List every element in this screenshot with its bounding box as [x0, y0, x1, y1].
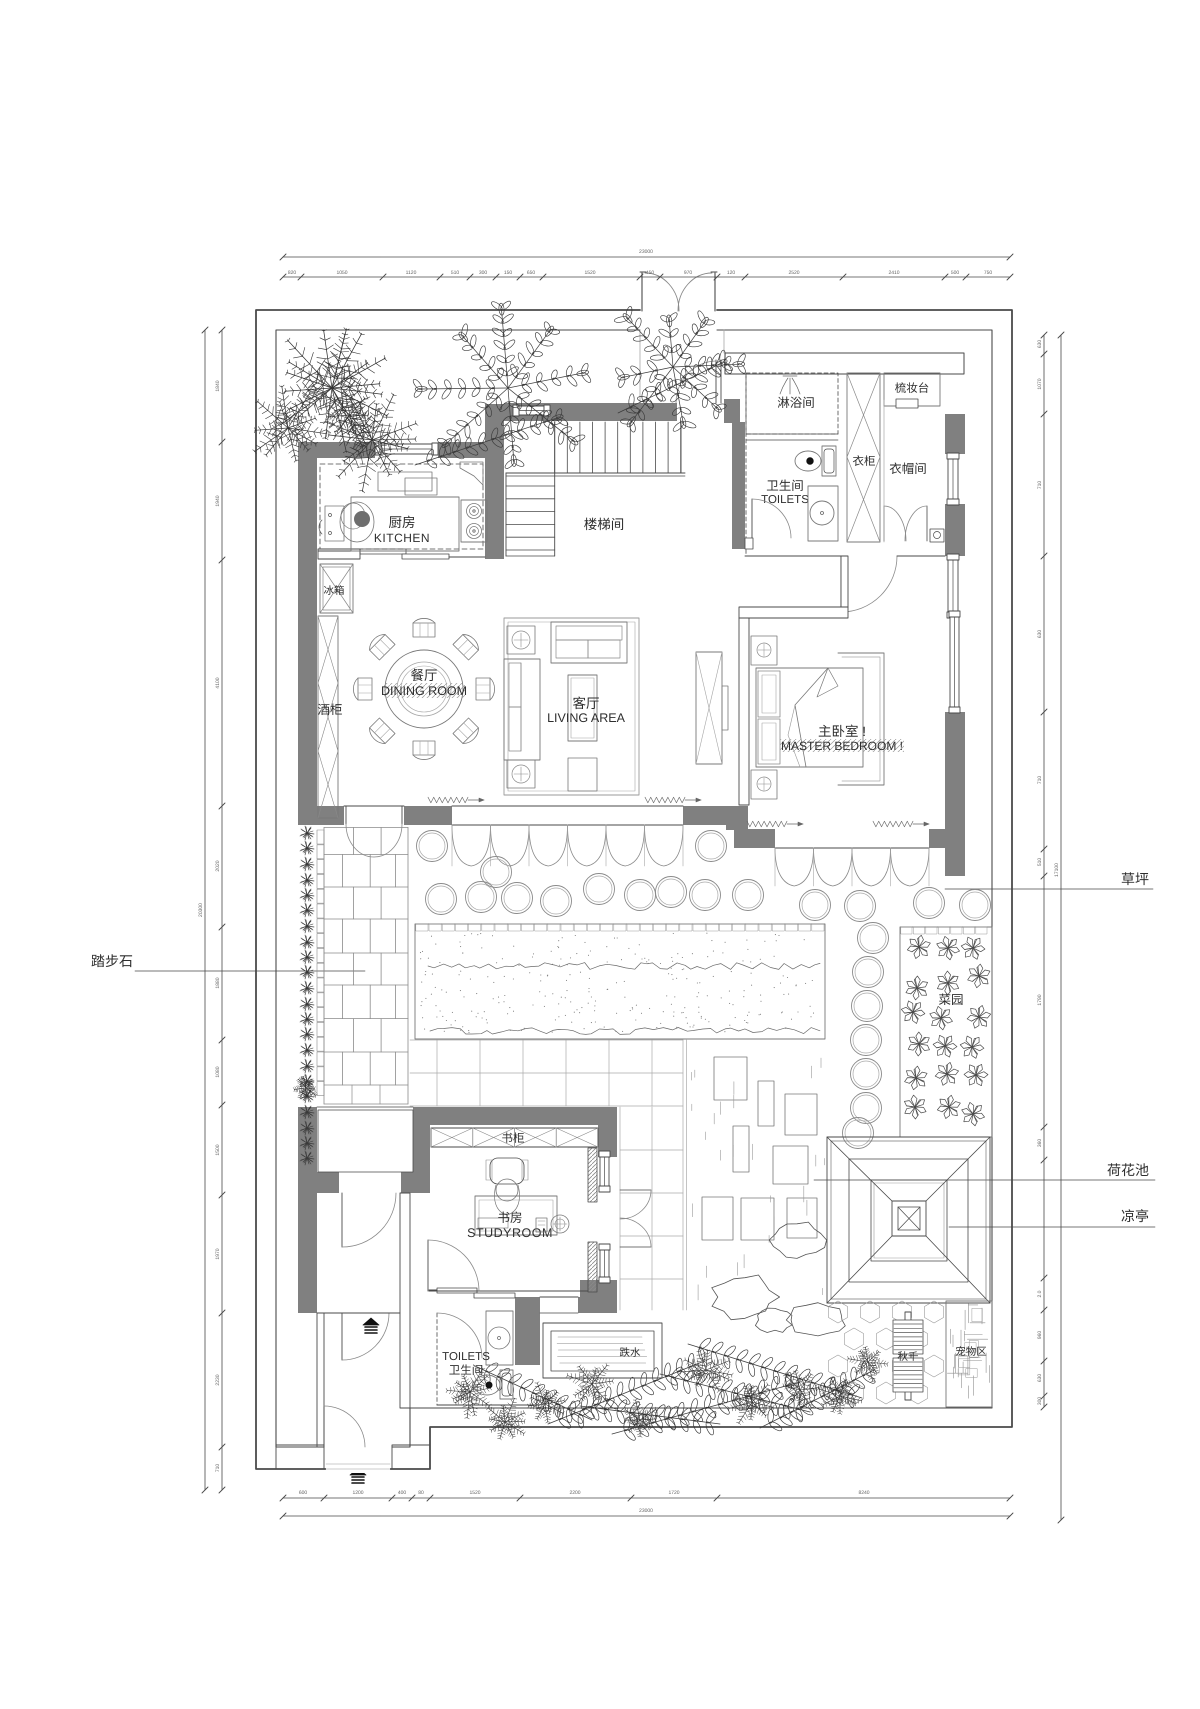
svg-text:1520: 1520 [469, 1490, 480, 1496]
svg-text:宠物区: 宠物区 [955, 1346, 987, 1358]
svg-text:卫生间: 卫生间 [766, 479, 804, 493]
svg-text:2230: 2230 [215, 1374, 221, 1385]
svg-text:23000: 23000 [639, 249, 653, 255]
svg-text:1050: 1050 [336, 270, 347, 276]
svg-text:楼梯间: 楼梯间 [584, 517, 625, 532]
svg-text:衣帽间: 衣帽间 [889, 462, 927, 476]
svg-text:荷花池: 荷花池 [1107, 1162, 1149, 1178]
svg-text:跌水: 跌水 [620, 1347, 641, 1359]
svg-text:710: 710 [1037, 481, 1043, 490]
svg-text:750: 750 [984, 270, 993, 276]
svg-text:17100: 17100 [1054, 863, 1060, 877]
svg-text:1500: 1500 [215, 1144, 221, 1155]
svg-text:2520: 2520 [788, 270, 799, 276]
svg-text:客厅: 客厅 [573, 696, 600, 711]
svg-text:23000: 23000 [639, 1508, 653, 1514]
svg-text:2020: 2020 [215, 860, 221, 871]
svg-text:2200: 2200 [569, 1490, 580, 1496]
svg-text:草坪: 草坪 [1121, 871, 1149, 887]
svg-text:1120: 1120 [406, 270, 417, 276]
svg-text:600: 600 [299, 1490, 308, 1496]
svg-text:8240: 8240 [858, 1490, 869, 1496]
svg-text:20300: 20300 [198, 903, 204, 917]
svg-text:书房: 书房 [497, 1211, 522, 1225]
svg-text:2410: 2410 [888, 270, 899, 276]
svg-text:MASTER BEDROOM !: MASTER BEDROOM ! [781, 739, 903, 753]
svg-text:餐厅: 餐厅 [411, 668, 438, 683]
svg-text:710: 710 [215, 1464, 221, 1473]
svg-text:1070: 1070 [1037, 378, 1043, 389]
svg-text:510: 510 [1037, 858, 1043, 867]
svg-text:710: 710 [1037, 776, 1043, 785]
svg-text:630: 630 [1037, 340, 1043, 349]
svg-text:510: 510 [451, 270, 460, 276]
svg-text:卫生间: 卫生间 [449, 1364, 484, 1377]
svg-text:KITCHEN: KITCHEN [374, 531, 430, 545]
svg-text:970: 970 [684, 270, 693, 276]
svg-text:450: 450 [646, 270, 655, 276]
svg-text:STUDYROOM: STUDYROOM [467, 1226, 553, 1240]
svg-text:400: 400 [398, 1490, 407, 1496]
svg-text:踏步石: 踏步石 [91, 953, 133, 969]
svg-text:LIVING AREA: LIVING AREA [547, 711, 625, 725]
svg-text:360: 360 [1037, 1139, 1043, 1148]
svg-text:4100: 4100 [215, 677, 221, 688]
svg-text:酒柜: 酒柜 [317, 703, 342, 717]
svg-text:630: 630 [1037, 1374, 1043, 1383]
svg-text:1520: 1520 [584, 270, 595, 276]
svg-text:150: 150 [504, 270, 513, 276]
svg-text:650: 650 [527, 270, 536, 276]
svg-text:1940: 1940 [215, 495, 221, 506]
svg-text:2.0: 2.0 [1037, 1290, 1043, 1297]
svg-text:衣柜: 衣柜 [853, 455, 876, 468]
svg-text:960: 960 [1037, 1331, 1043, 1340]
svg-text:120: 120 [727, 270, 736, 276]
svg-text:820: 820 [288, 270, 297, 276]
svg-text:1970: 1970 [215, 1248, 221, 1259]
svg-text:TOILETS: TOILETS [761, 494, 809, 506]
svg-text:1200: 1200 [352, 1490, 363, 1496]
svg-text:1080: 1080 [215, 1066, 221, 1077]
svg-text:梳妆台: 梳妆台 [895, 382, 930, 395]
svg-text:凉亭: 凉亭 [1121, 1208, 1149, 1224]
svg-text:1720: 1720 [668, 1490, 679, 1496]
svg-text:300: 300 [479, 270, 488, 276]
svg-text:冰箱: 冰箱 [324, 585, 345, 597]
svg-text:厨房: 厨房 [389, 515, 416, 530]
svg-text:1840: 1840 [215, 380, 221, 391]
svg-text:主卧室 !: 主卧室 ! [818, 724, 866, 739]
svg-text:秋千: 秋千 [898, 1351, 919, 1363]
svg-text:1880: 1880 [215, 977, 221, 988]
svg-text:630: 630 [1037, 630, 1043, 639]
svg-text:500: 500 [951, 270, 960, 276]
svg-text:DINING ROOM: DINING ROOM [381, 684, 467, 698]
svg-text:80: 80 [418, 1490, 424, 1496]
svg-text:300: 300 [1037, 1397, 1043, 1406]
svg-text:1790: 1790 [1037, 994, 1043, 1005]
svg-text:菜园: 菜园 [938, 993, 963, 1007]
svg-text:淋浴间: 淋浴间 [777, 396, 815, 410]
svg-text:书柜: 书柜 [502, 1132, 525, 1145]
svg-text:TOILETS: TOILETS [442, 1351, 490, 1363]
